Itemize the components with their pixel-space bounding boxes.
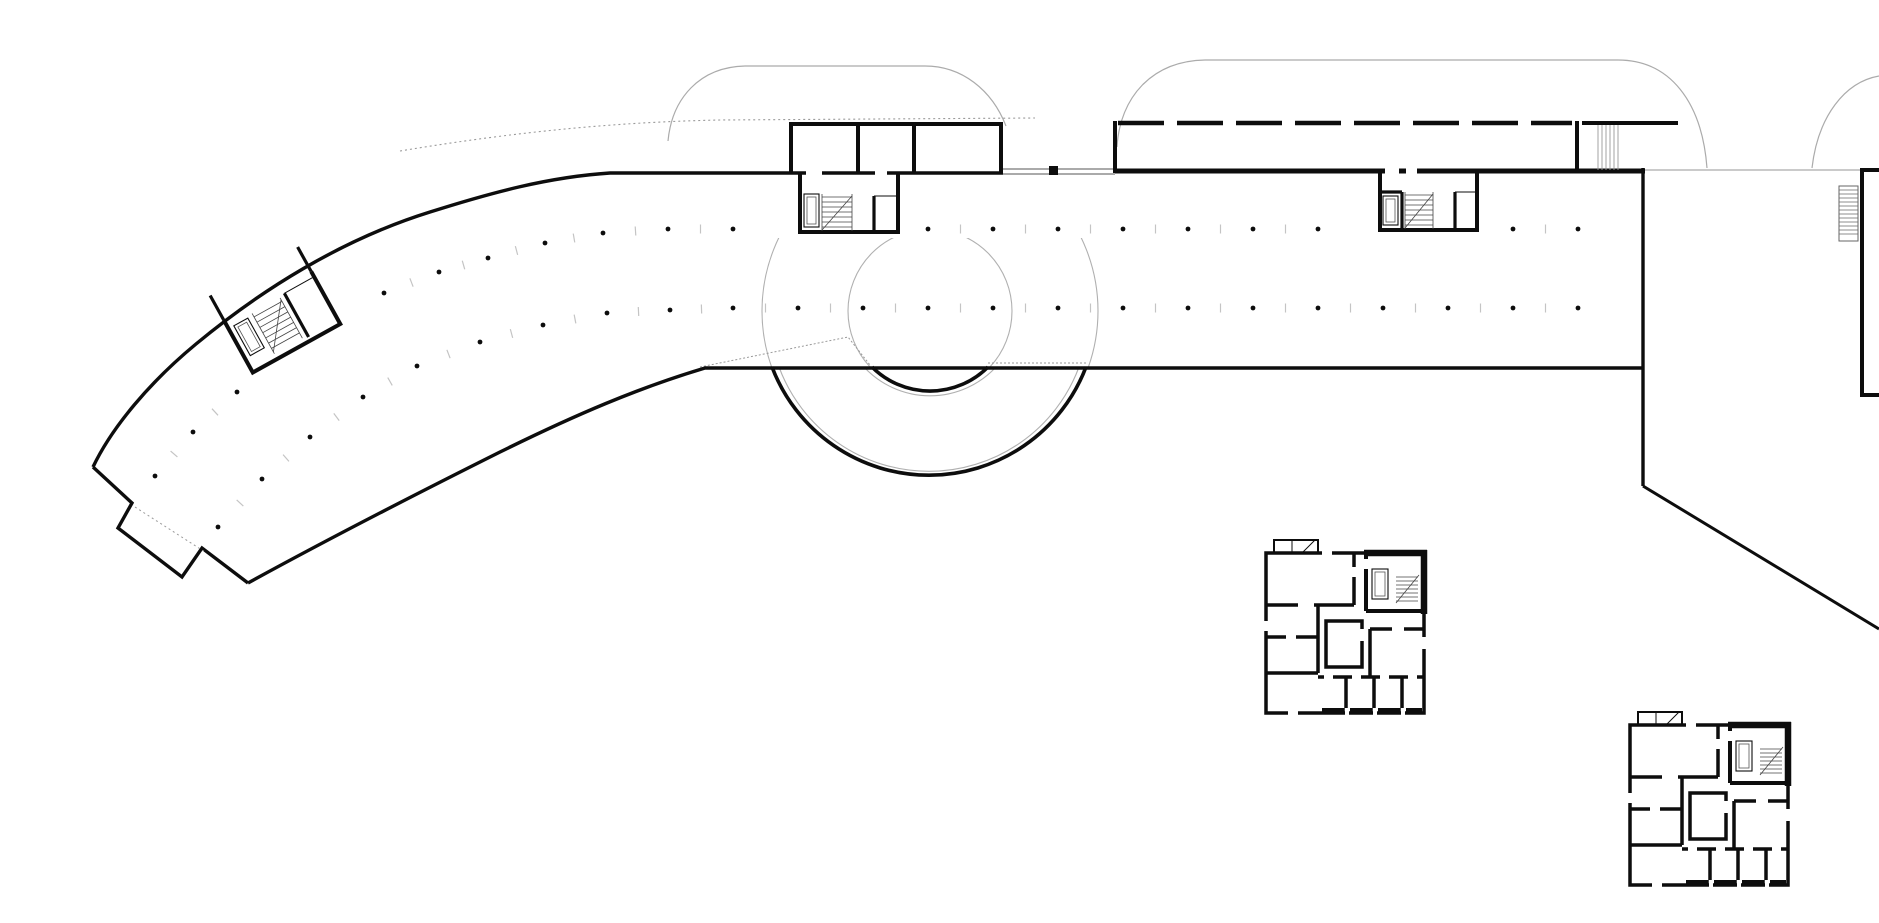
column-dot: [437, 270, 442, 275]
column-dot: [1381, 306, 1386, 311]
pavilion-stair-core: [800, 173, 898, 232]
column-grid-tick: [462, 261, 464, 270]
edge-column-block: [1049, 166, 1058, 175]
floor-plan-sheet: [0, 0, 1879, 923]
column-dot: [668, 308, 673, 313]
column-dot: [382, 291, 387, 296]
column-dot: [216, 525, 221, 530]
column-dot: [1056, 306, 1061, 311]
column-dot: [1056, 227, 1061, 232]
ramp-inner-wall: [872, 367, 988, 391]
column-dot: [1576, 306, 1581, 311]
column-grid-tick: [447, 350, 450, 358]
column-dot: [1511, 227, 1516, 232]
far-right-room-with-ladder: [1839, 168, 1879, 395]
column-grid-tick: [334, 413, 339, 420]
column-dot: [1316, 227, 1321, 232]
column-grid-tick: [171, 451, 178, 457]
column-dot: [1121, 227, 1126, 232]
canopy-left-outline: [668, 66, 1006, 141]
column-dot: [308, 435, 313, 440]
ramp-outer-thin-wall: [779, 367, 1079, 471]
ramp-outer-wall: [772, 367, 1086, 475]
column-dot: [1186, 227, 1191, 232]
roof-canopy-outlines: [668, 60, 1879, 170]
column-grid-tick: [237, 500, 244, 506]
column-dot: [731, 306, 736, 311]
elevator: [1383, 196, 1398, 225]
building-top-edge: [93, 173, 1003, 467]
column-grid-tick: [573, 234, 575, 243]
column-dot: [543, 241, 548, 246]
column-dot: [153, 474, 158, 479]
building-end-wall: [93, 467, 248, 583]
floor-plan-drawing: [0, 0, 1879, 923]
column-dot: [1251, 306, 1256, 311]
column-grid: [153, 225, 1581, 530]
housing-unit-b: [1628, 712, 1791, 888]
stair-flight: [822, 194, 852, 231]
column-dot: [361, 395, 366, 400]
column-dot: [1186, 306, 1191, 311]
right-stair-core: [1380, 173, 1477, 230]
column-dot: [926, 306, 931, 311]
left-stair-core: [210, 247, 340, 372]
column-dot: [1511, 306, 1516, 311]
bridge-hatch: [1598, 125, 1618, 170]
column-dot: [991, 227, 996, 232]
column-dot: [991, 306, 996, 311]
ladder-rungs: [1839, 190, 1858, 234]
glazed-edge-segment: [1003, 169, 1115, 174]
column-grid-tick: [212, 409, 218, 416]
stair-flight: [1405, 192, 1433, 229]
column-dot: [731, 227, 736, 232]
column-dot: [486, 256, 491, 261]
ramp-dotted-wedge: [700, 337, 870, 367]
column-grid-tick: [283, 455, 289, 462]
column-dot: [1251, 227, 1256, 232]
column-dot: [1316, 306, 1321, 311]
dashed-roof-building: [1115, 121, 1678, 173]
canopy-right-outline: [1117, 60, 1707, 168]
column-dot: [1121, 306, 1126, 311]
column-dot: [191, 430, 196, 435]
building-tip-dotted: [135, 507, 205, 552]
column-dot: [478, 340, 483, 345]
column-dot: [605, 311, 610, 316]
column-dot: [861, 306, 866, 311]
column-dot: [666, 227, 671, 232]
canopy-far-right-outline: [1812, 76, 1879, 168]
column-grid-tick: [410, 278, 413, 286]
column-grid-tick: [510, 329, 512, 338]
column-dot: [1446, 306, 1451, 311]
column-dot: [1576, 227, 1581, 232]
column-dot: [541, 323, 546, 328]
column-dot: [260, 477, 265, 482]
column-dot: [235, 390, 240, 395]
column-grid-tick: [515, 246, 517, 255]
site-boundary-diagonal: [1643, 486, 1879, 629]
column-dot: [601, 231, 606, 236]
column-grid-tick: [388, 378, 392, 386]
column-dot: [415, 364, 420, 369]
housing-unit-a: [1264, 540, 1427, 716]
elevator: [804, 194, 819, 227]
column-grid-tick: [635, 227, 636, 236]
column-grid-tick: [574, 315, 576, 324]
top-pavilion-block: [789, 122, 1003, 173]
column-dot: [796, 306, 801, 311]
column-dot: [926, 227, 931, 232]
